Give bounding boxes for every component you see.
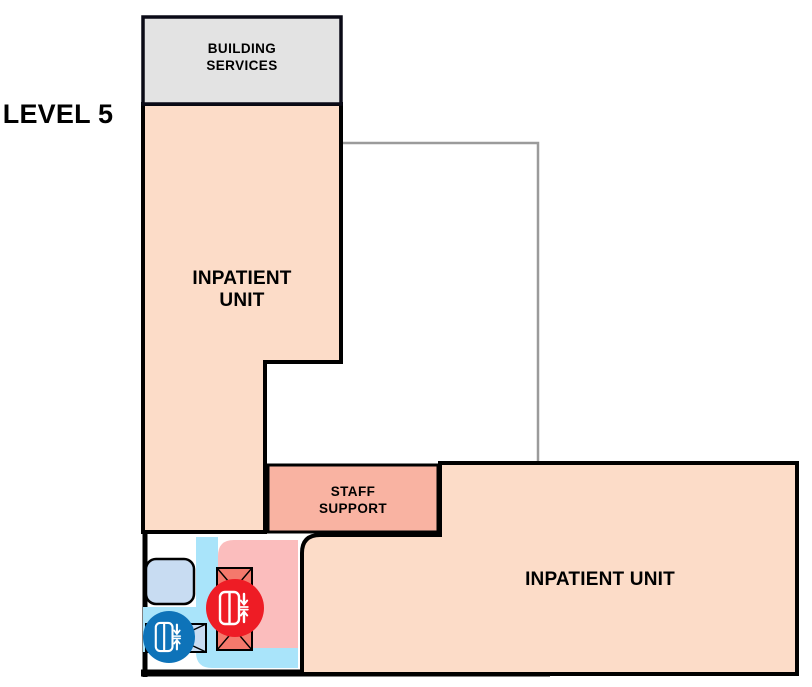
building-outline	[343, 143, 538, 462]
level-title: LEVEL 5	[3, 99, 113, 129]
inpatient-left-label-line1: INPATIENT	[192, 268, 291, 289]
floor-plan-level-5: LEVEL 5 BUILDING SERVICES INPATIENT UNIT…	[0, 0, 812, 687]
elevator-marker-red	[206, 579, 264, 637]
inpatient-right-label: INPATIENT UNIT	[525, 569, 675, 590]
elevator-marker-blue	[143, 611, 195, 663]
staff-support-label-line2: SUPPORT	[319, 501, 387, 516]
inpatient-left-label-line2: UNIT	[219, 290, 264, 311]
core-room	[146, 559, 194, 604]
staff-support-label-line1: STAFF	[331, 484, 376, 499]
building-services-label-line2: SERVICES	[206, 58, 277, 73]
building-services-label-line1: BUILDING	[208, 41, 276, 56]
floor-plan-canvas: LEVEL 5 BUILDING SERVICES INPATIENT UNIT…	[0, 0, 812, 687]
